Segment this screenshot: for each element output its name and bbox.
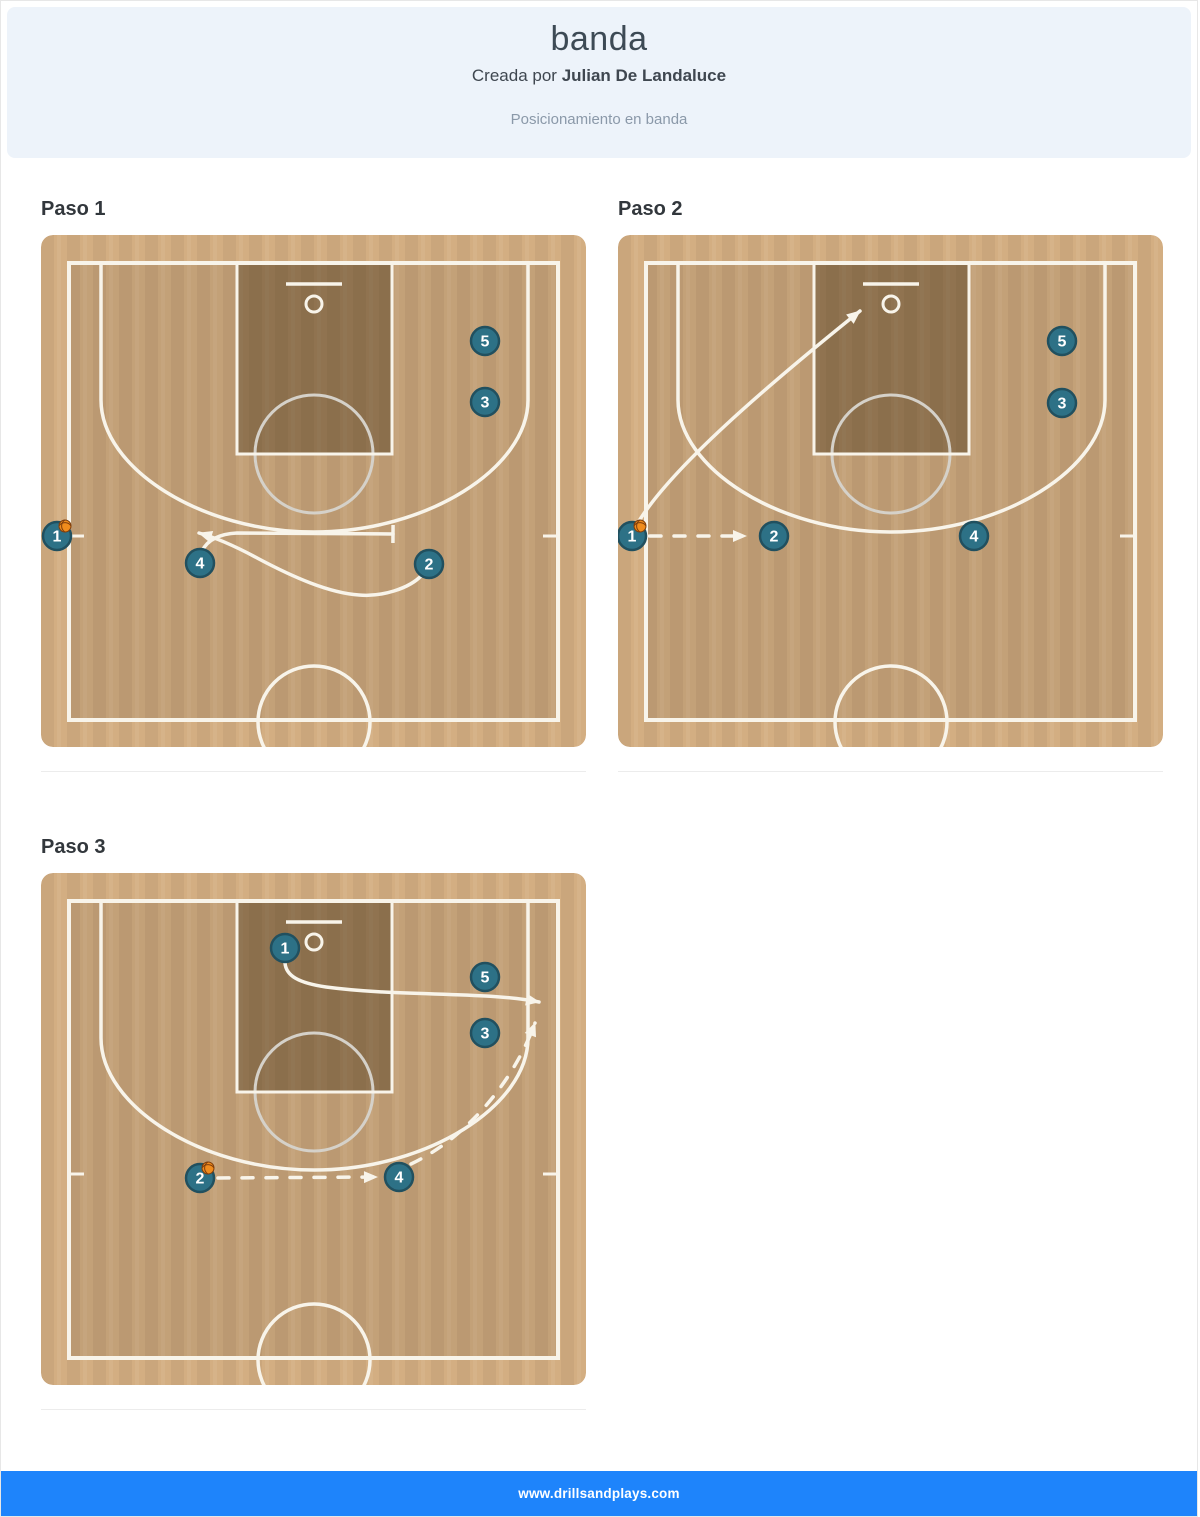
steps-grid: Paso 1 53142 Paso 2 53124 Paso 3 15324 bbox=[1, 196, 1197, 1410]
author-name: Julian De Landaluce bbox=[562, 66, 726, 85]
court-diagram-paso-1: 53142 bbox=[41, 235, 586, 747]
player-token-1: 1 bbox=[271, 934, 299, 962]
page: banda Creada por Julian De Landaluce Pos… bbox=[0, 0, 1198, 1517]
basketball-icon bbox=[59, 520, 71, 532]
step-paso-3: Paso 3 15324 bbox=[41, 834, 586, 1410]
step-title: Paso 3 bbox=[41, 834, 586, 860]
player-number: 3 bbox=[1058, 396, 1067, 413]
site-url-link[interactable]: www.drillsandplays.com bbox=[518, 1486, 679, 1501]
player-number: 5 bbox=[481, 334, 490, 351]
player-number: 2 bbox=[770, 529, 779, 546]
divider bbox=[618, 771, 1163, 772]
player-token-2: 2 bbox=[760, 522, 788, 550]
player-number: 1 bbox=[628, 529, 637, 546]
player-token-4: 4 bbox=[186, 549, 214, 577]
paint-area bbox=[237, 263, 392, 454]
player-token-3: 3 bbox=[471, 388, 499, 416]
player-token-5: 5 bbox=[471, 963, 499, 991]
player-token-5: 5 bbox=[1048, 327, 1076, 355]
player-token-3: 3 bbox=[1048, 389, 1076, 417]
court-surface: 15324 bbox=[41, 873, 586, 1385]
player-number: 4 bbox=[970, 529, 979, 546]
player-number: 5 bbox=[1058, 334, 1067, 351]
player-number: 1 bbox=[53, 529, 62, 546]
player-number: 2 bbox=[425, 557, 434, 574]
paint-area bbox=[814, 263, 969, 454]
court-surface: 53142 bbox=[41, 235, 586, 747]
paint-area bbox=[237, 901, 392, 1092]
step-paso-1: Paso 1 53142 bbox=[41, 196, 586, 772]
player-number: 4 bbox=[196, 556, 205, 573]
player-number: 5 bbox=[481, 970, 490, 987]
player-number: 1 bbox=[281, 941, 290, 958]
step-paso-2: Paso 2 53124 bbox=[618, 196, 1163, 772]
court-diagram-paso-2: 53124 bbox=[618, 235, 1163, 747]
player-token-4: 4 bbox=[960, 522, 988, 550]
author-line: Creada por Julian De Landaluce bbox=[7, 66, 1191, 86]
player-number: 2 bbox=[196, 1171, 205, 1188]
author-prefix: Creada por bbox=[472, 66, 562, 85]
basketball-icon bbox=[634, 520, 646, 532]
play-title: banda bbox=[7, 20, 1191, 59]
divider bbox=[41, 771, 586, 772]
basketball-icon bbox=[202, 1162, 214, 1174]
play-header: banda Creada por Julian De Landaluce Pos… bbox=[7, 7, 1191, 158]
player-token-2: 2 bbox=[415, 550, 443, 578]
player-token-5: 5 bbox=[471, 327, 499, 355]
player-token-4: 4 bbox=[385, 1163, 413, 1191]
step-title: Paso 1 bbox=[41, 196, 586, 222]
player-number: 3 bbox=[481, 395, 490, 412]
court-surface: 53124 bbox=[618, 235, 1163, 747]
step-title: Paso 2 bbox=[618, 196, 1163, 222]
play-subtitle: Posicionamiento en banda bbox=[7, 111, 1191, 128]
player-number: 4 bbox=[395, 1170, 404, 1187]
player-token-3: 3 bbox=[471, 1019, 499, 1047]
site-footer: www.drillsandplays.com bbox=[1, 1471, 1197, 1516]
divider bbox=[41, 1409, 586, 1410]
court-diagram-paso-3: 15324 bbox=[41, 873, 586, 1385]
player-number: 3 bbox=[481, 1026, 490, 1043]
